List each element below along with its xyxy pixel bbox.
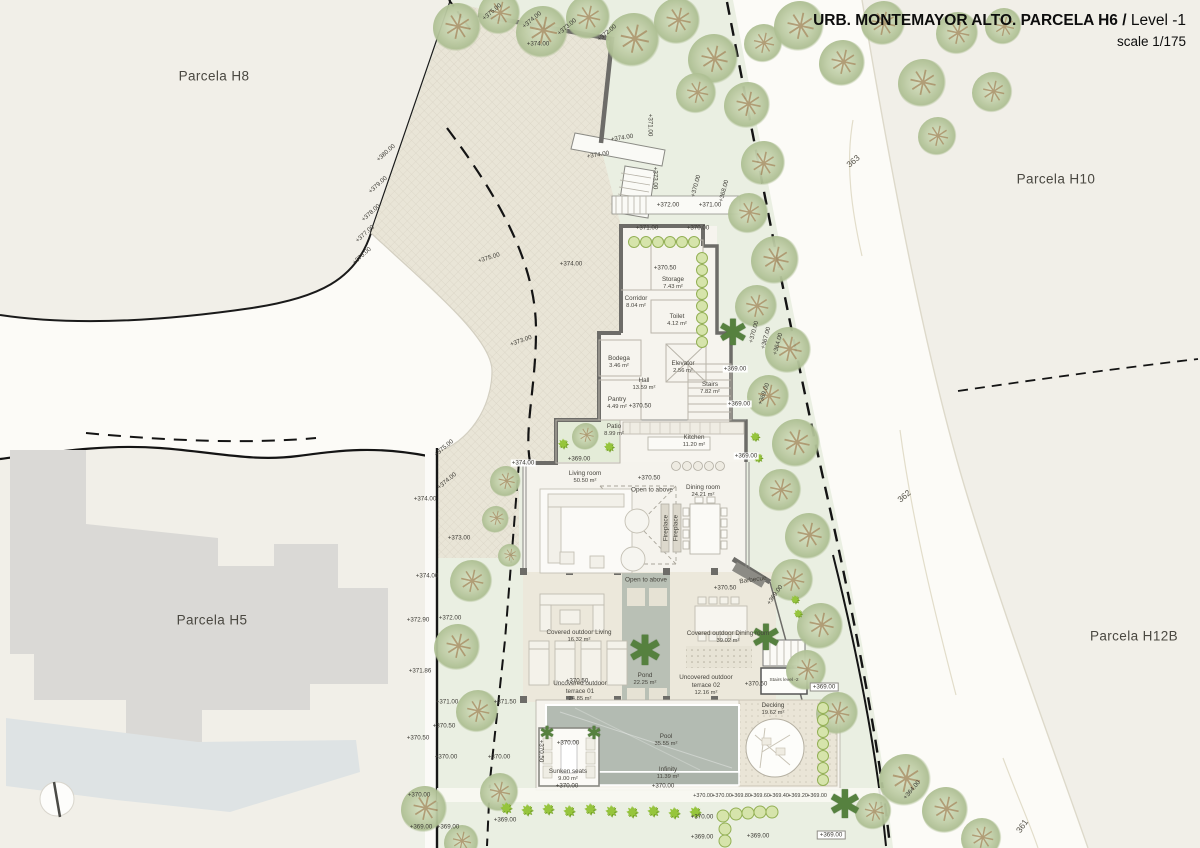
west-road-shoulder (425, 452, 437, 848)
drawing-scale: scale 1/175 (813, 34, 1186, 49)
title-block: URB. MONTEMAYOR ALTO. PARCELA H6 / Level… (813, 12, 1186, 49)
plan-drawing (0, 0, 1200, 848)
umbrella (746, 719, 804, 777)
project-name: URB. MONTEMAYOR ALTO. PARCELA H6 / (813, 12, 1126, 29)
drawing-title: URB. MONTEMAYOR ALTO. PARCELA H6 / Level… (813, 12, 1186, 30)
sunken-seats (539, 728, 599, 786)
site-plan-canvas: ✳✳✳✳✳✳✳✳✳✳✳✳✳✳✳✳✳✳✳✳✳✳✳✳✳✳✳✳✳✳✳✳✳✳✳✳✳✳✳✳… (0, 0, 1200, 848)
lower-walkway (437, 788, 896, 802)
level-name: Level -1 (1127, 12, 1186, 29)
dining-furniture (683, 497, 727, 554)
patio-floor (556, 420, 620, 463)
